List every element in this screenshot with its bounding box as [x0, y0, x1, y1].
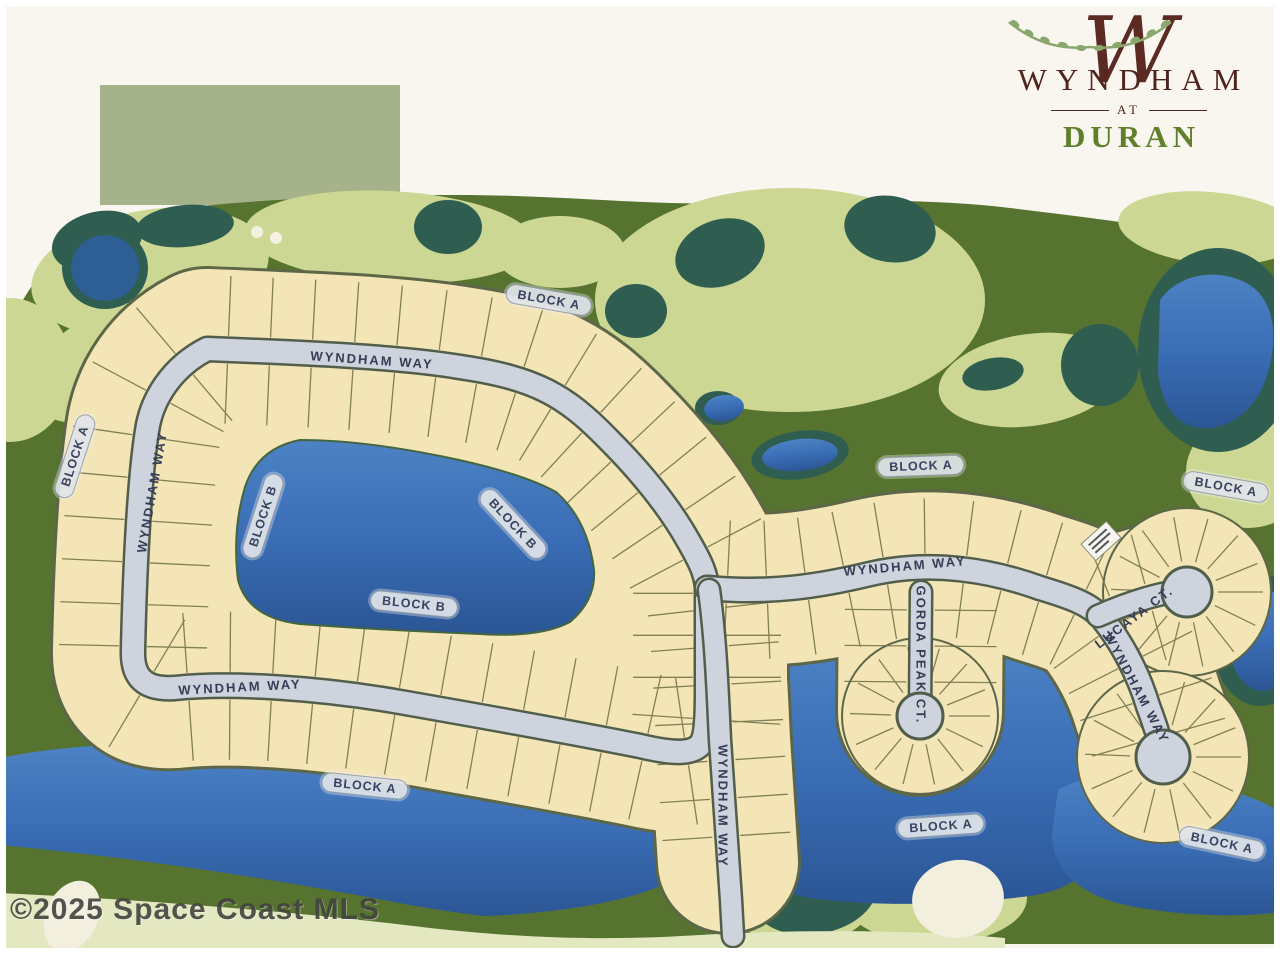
mls-watermark: ©2025 Space Coast MLS	[10, 893, 380, 927]
gray-green-parcel	[100, 85, 400, 205]
sand-dot	[270, 232, 282, 244]
lake-small-northwest	[71, 235, 139, 301]
rule-right	[1149, 110, 1207, 111]
logo-at-row: AT	[995, 102, 1263, 118]
site-plan-image: W WYNDHAM AT DURAN WYNDHAM WAY WYN	[0, 0, 1280, 960]
community-logo: W WYNDHAM AT DURAN	[995, 12, 1263, 155]
logo-title: WYNDHAM	[995, 62, 1263, 98]
sand-dot	[251, 226, 263, 238]
logo-at: AT	[1117, 102, 1141, 118]
rule-left	[1051, 110, 1109, 111]
logo-subtitle: DURAN	[995, 119, 1263, 155]
